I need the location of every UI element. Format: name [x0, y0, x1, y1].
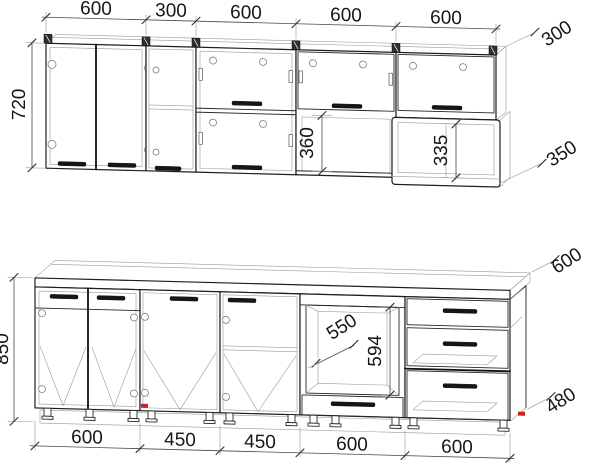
upper-cabinet-3: [196, 47, 296, 175]
flip-hinge: [299, 71, 303, 83]
dim-upper-depth: 300: [538, 17, 576, 51]
dim-base-width-3: 450: [244, 431, 276, 453]
base-cabinet-3: [220, 292, 300, 415]
hinge-circle: [153, 149, 159, 155]
upper-cabinet-1: [46, 43, 152, 171]
dim-upper-width-2: 300: [155, 0, 187, 22]
flip-hinge: [389, 73, 393, 85]
dim-upper-width-4: 600: [330, 5, 362, 27]
hinge-circle: [142, 313, 149, 320]
base-cabinet-1: [35, 287, 140, 411]
kitchen-elevation-drawing: 600 300 600 600 600 720 300 350 360 335: [0, 0, 600, 475]
shelf-pin: [260, 120, 267, 127]
door-handle: [228, 298, 256, 303]
door-handle: [50, 294, 78, 299]
base-cabinets: [35, 260, 530, 436]
door-handle: [108, 163, 136, 168]
dim-upper-height: 720: [9, 88, 30, 120]
flip-door-handle: [332, 104, 362, 109]
door-handle: [58, 162, 86, 167]
dim-worktop-depth: 600: [548, 244, 586, 278]
shelf-pin: [310, 60, 317, 67]
dim-upper-shelf-inner-height: 335: [431, 134, 452, 166]
red-marker: [518, 412, 525, 416]
dim-upper-width-5: 600: [430, 7, 462, 29]
door-handle: [97, 296, 125, 301]
door-handle: [170, 296, 198, 301]
dim-niche-height: 594: [365, 334, 386, 367]
base-cabinet-2: [140, 290, 220, 413]
flip-hinge: [199, 68, 203, 80]
hinge-circle: [131, 390, 138, 397]
base-right-side-panel: [510, 285, 526, 421]
drawer-handle: [443, 309, 477, 314]
hinge-circle: [48, 60, 56, 68]
shelf-pin: [260, 58, 267, 65]
upper-right-side-panel: [496, 46, 506, 120]
shelf-pin: [460, 64, 467, 71]
drawing-canvas: 600 300 600 600 600 720 300 350 360 335: [0, 0, 600, 475]
shelf-pin: [210, 57, 217, 64]
flip-hinge: [289, 71, 293, 83]
door-handle: [155, 166, 181, 171]
hinge-circle: [153, 67, 159, 73]
dim-upper-width-3: 600: [230, 2, 262, 24]
open-shelf-side-panel: [500, 111, 510, 187]
shelf-pin: [360, 61, 367, 68]
hinge-circle: [39, 310, 46, 317]
shelf-pin: [210, 119, 217, 126]
flip-door-handle: [432, 105, 462, 110]
dim-base-height: 850: [0, 333, 13, 365]
drawer-handle: [443, 384, 477, 389]
flip-door-handle: [232, 101, 262, 106]
flip-hinge: [289, 135, 293, 147]
dim-base-width-1: 600: [71, 427, 103, 449]
dim-base-width-4: 600: [336, 434, 368, 456]
hinge-circle: [223, 393, 230, 400]
dim-base-width-5: 600: [441, 437, 473, 459]
upper-cabinet-2: [146, 46, 196, 172]
dim-upper-width-1: 600: [80, 0, 112, 20]
drawer-handle: [443, 342, 477, 347]
flip-door-handle: [232, 165, 262, 170]
hinge-circle: [223, 316, 230, 323]
hinge-circle: [131, 314, 138, 321]
dim-upper-niche-height: 360: [297, 127, 318, 159]
dim-base-width-2: 450: [164, 429, 196, 451]
red-marker: [141, 404, 148, 408]
base-cabinet-4: [300, 294, 405, 418]
shelf-pin: [410, 62, 417, 69]
hinge-circle: [39, 386, 46, 393]
dim-base-depth: 480: [542, 384, 580, 418]
flip-hinge: [199, 132, 203, 144]
base-cabinet-5: [405, 286, 525, 421]
hinge-circle: [48, 140, 56, 148]
dim-upper-shelf-depth: 350: [543, 137, 581, 171]
hinge-circle: [142, 389, 149, 396]
